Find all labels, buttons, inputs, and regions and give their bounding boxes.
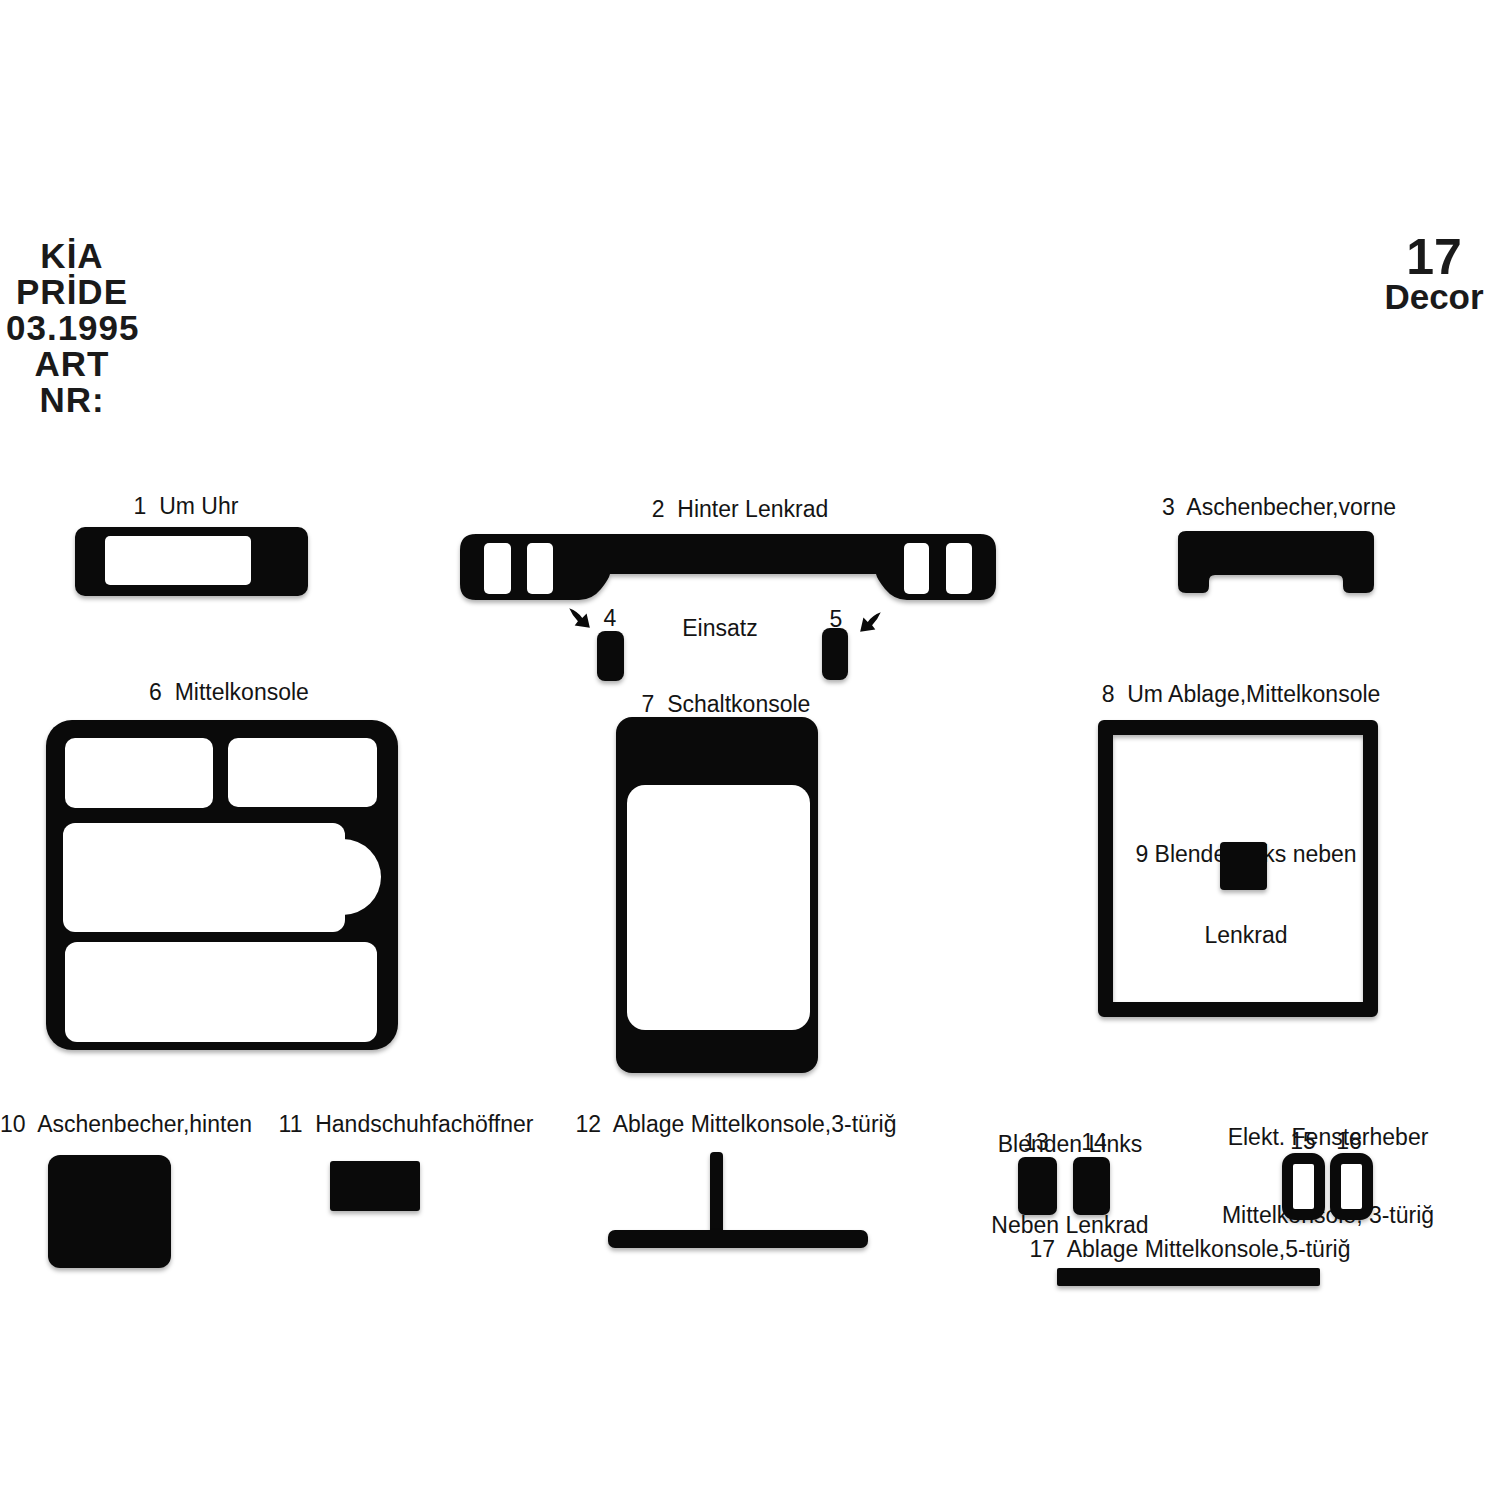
part-3-shape bbox=[1176, 529, 1376, 595]
parts-13-14-header-line2: Neben Lenkrad bbox=[991, 1212, 1148, 1239]
callout-arrow-right-icon bbox=[858, 610, 884, 636]
part-16-label: 16 bbox=[1336, 1129, 1362, 1154]
part-5-shape bbox=[822, 628, 848, 680]
part-12-stem bbox=[710, 1152, 723, 1236]
part-9-shape bbox=[1220, 842, 1267, 890]
part-2-label: 2 Hinter Lenkrad bbox=[652, 497, 828, 522]
part-6-shape bbox=[46, 720, 398, 1050]
part-2-slot-1 bbox=[484, 543, 511, 594]
part-2-slot-2 bbox=[527, 543, 553, 594]
part-16-shape bbox=[1330, 1153, 1373, 1220]
callout-arrow-left-icon bbox=[566, 606, 592, 632]
parts-15-16-header-line2: Mittelkonsole, 3-türiğ bbox=[1222, 1202, 1434, 1228]
part-11-shape bbox=[330, 1161, 420, 1211]
part-11-label: 11 Handschuhfachöffner bbox=[279, 1112, 534, 1137]
part-6-label: 6 Mittelkonsole bbox=[149, 680, 309, 705]
part-10-label: 10 Aschenbecher,hinten bbox=[0, 1112, 252, 1137]
decor-badge: 17 Decor bbox=[1374, 233, 1494, 313]
part-3-label: 3 Aschenbecher,vorne bbox=[1162, 495, 1396, 520]
part-7-cutout bbox=[627, 785, 810, 1030]
part-2-slot-4 bbox=[946, 543, 972, 594]
part-13-shape bbox=[1018, 1157, 1057, 1215]
part-4-label: 4 bbox=[604, 606, 617, 631]
part-6-cutout-top-left bbox=[65, 738, 213, 808]
part-14-shape bbox=[1073, 1157, 1110, 1215]
parts-13-14-header-line1: Blenden Links bbox=[991, 1131, 1148, 1158]
part-8-label: 8 Um Ablage,Mittelkonsole bbox=[1102, 682, 1381, 707]
part-1-label: 1 Um Uhr bbox=[134, 494, 239, 519]
brand-name: KİA bbox=[6, 238, 138, 274]
model-date: 03.1995 bbox=[6, 310, 138, 346]
part-1-shape bbox=[75, 527, 308, 596]
part-4-shape bbox=[597, 631, 624, 681]
trim-kit-diagram: KİA PRİDE 03.1995 ART NR: 17 Decor 1 Um … bbox=[0, 0, 1500, 1500]
part-6-cutout-middle-bulge bbox=[305, 839, 381, 915]
part-1-cutout bbox=[105, 536, 251, 585]
einsatz-label: Einsatz bbox=[682, 616, 757, 641]
part-15-label: 15 bbox=[1290, 1129, 1316, 1154]
model-name: PRİDE bbox=[6, 274, 138, 310]
part-17-shape bbox=[1057, 1268, 1320, 1286]
art-number-label: ART NR: bbox=[6, 346, 138, 418]
part-17-label: 17 Ablage Mittelkonsole,5-türiğ bbox=[1030, 1237, 1351, 1262]
parts-15-16-header-line1: Elekt. Fensterheber bbox=[1222, 1124, 1434, 1150]
part-6-cutout-bottom bbox=[65, 942, 377, 1042]
part-12-label: 12 Ablage Mittelkonsole,3-türiğ bbox=[576, 1112, 897, 1137]
part-6-cutout-middle bbox=[63, 823, 345, 932]
decor-count: 17 bbox=[1374, 233, 1494, 281]
part-15-shape bbox=[1282, 1153, 1325, 1220]
decor-word: Decor bbox=[1374, 281, 1494, 313]
part-14-label: 14 bbox=[1081, 1130, 1107, 1155]
part-2-slot-3 bbox=[904, 543, 929, 594]
part-2-shape bbox=[458, 532, 998, 604]
part-7-shape bbox=[616, 717, 818, 1073]
part-7-label: 7 Schaltkonsole bbox=[642, 692, 811, 717]
part-13-label: 13 bbox=[1023, 1130, 1049, 1155]
part-12-bar bbox=[608, 1230, 868, 1248]
part-6-cutout-top-right bbox=[228, 738, 377, 807]
part-10-shape bbox=[48, 1155, 171, 1268]
brand-block: KİA PRİDE 03.1995 ART NR: bbox=[6, 238, 138, 418]
